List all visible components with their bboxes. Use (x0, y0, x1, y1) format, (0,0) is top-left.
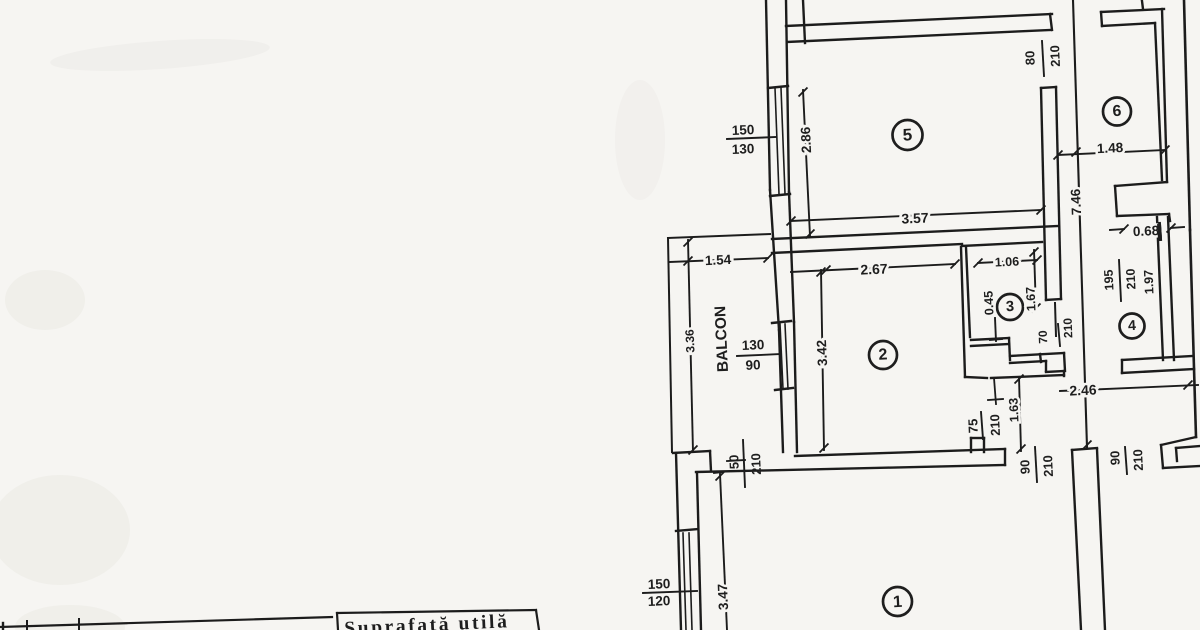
svg-text:3.42: 3.42 (814, 340, 830, 367)
svg-text:210: 210 (987, 414, 1003, 436)
svg-text:1.67: 1.67 (1023, 287, 1038, 312)
svg-text:210: 210 (1040, 455, 1056, 477)
svg-text:210: 210 (1130, 449, 1146, 471)
svg-text:90: 90 (1017, 459, 1033, 474)
svg-text:3: 3 (1005, 299, 1014, 315)
svg-text:75: 75 (965, 418, 981, 433)
svg-text:195: 195 (1102, 269, 1117, 290)
svg-text:1.97: 1.97 (1141, 270, 1156, 295)
svg-text:6: 6 (1112, 103, 1122, 120)
svg-text:1.06: 1.06 (995, 254, 1020, 269)
svg-text:80: 80 (1022, 50, 1038, 65)
svg-text:3.36: 3.36 (682, 329, 697, 353)
svg-text:2.67: 2.67 (860, 260, 888, 277)
svg-text:2.86: 2.86 (798, 126, 814, 153)
svg-text:7.46: 7.46 (1068, 188, 1084, 215)
svg-text:4: 4 (1128, 318, 1137, 334)
svg-text:1.63: 1.63 (1006, 398, 1021, 423)
svg-text:0.68: 0.68 (1133, 223, 1160, 239)
svg-text:3.57: 3.57 (901, 209, 929, 226)
svg-text:150: 150 (731, 122, 754, 138)
svg-text:2: 2 (878, 346, 888, 363)
svg-text:3.47: 3.47 (715, 584, 731, 611)
svg-text:210: 210 (1124, 268, 1139, 289)
svg-text:70: 70 (1036, 330, 1051, 344)
svg-text:210: 210 (748, 453, 764, 475)
svg-text:130: 130 (731, 141, 754, 157)
svg-text:50: 50 (726, 454, 742, 469)
svg-text:1: 1 (892, 592, 902, 611)
svg-text:210: 210 (1061, 317, 1076, 338)
svg-text:0.45: 0.45 (981, 291, 996, 316)
svg-text:1.54: 1.54 (705, 252, 732, 268)
svg-text:5: 5 (902, 125, 913, 144)
svg-text:2.46: 2.46 (1069, 381, 1097, 398)
svg-text:150: 150 (647, 576, 670, 592)
svg-text:90: 90 (745, 357, 761, 373)
svg-text:90: 90 (1107, 450, 1123, 465)
svg-text:120: 120 (647, 593, 670, 609)
svg-text:BALCON: BALCON (712, 306, 732, 373)
svg-text:1.48: 1.48 (1097, 140, 1124, 156)
svg-text:210: 210 (1047, 45, 1063, 67)
svg-text:130: 130 (741, 337, 764, 353)
